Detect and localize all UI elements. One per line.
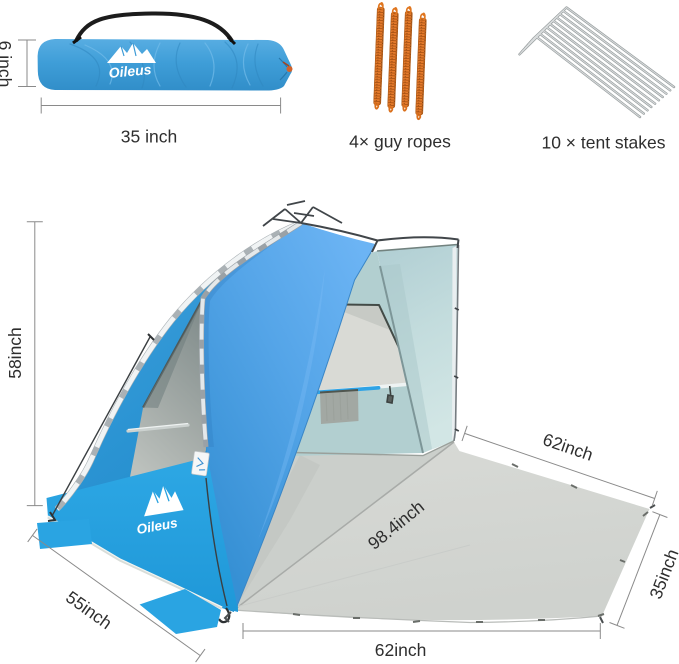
svg-text:35 inch: 35 inch [121, 127, 177, 147]
svg-text:58inch: 58inch [5, 327, 25, 379]
svg-text:10 × tent stakes: 10 × tent stakes [541, 133, 665, 153]
svg-text:62inch: 62inch [375, 640, 427, 660]
svg-text:6 inch: 6 inch [0, 41, 15, 88]
svg-text:4× guy ropes: 4× guy ropes [349, 132, 451, 152]
svg-text:35inch: 35inch [645, 546, 679, 601]
svg-text:62inch: 62inch [540, 429, 595, 465]
svg-text:55inch: 55inch [62, 587, 116, 633]
